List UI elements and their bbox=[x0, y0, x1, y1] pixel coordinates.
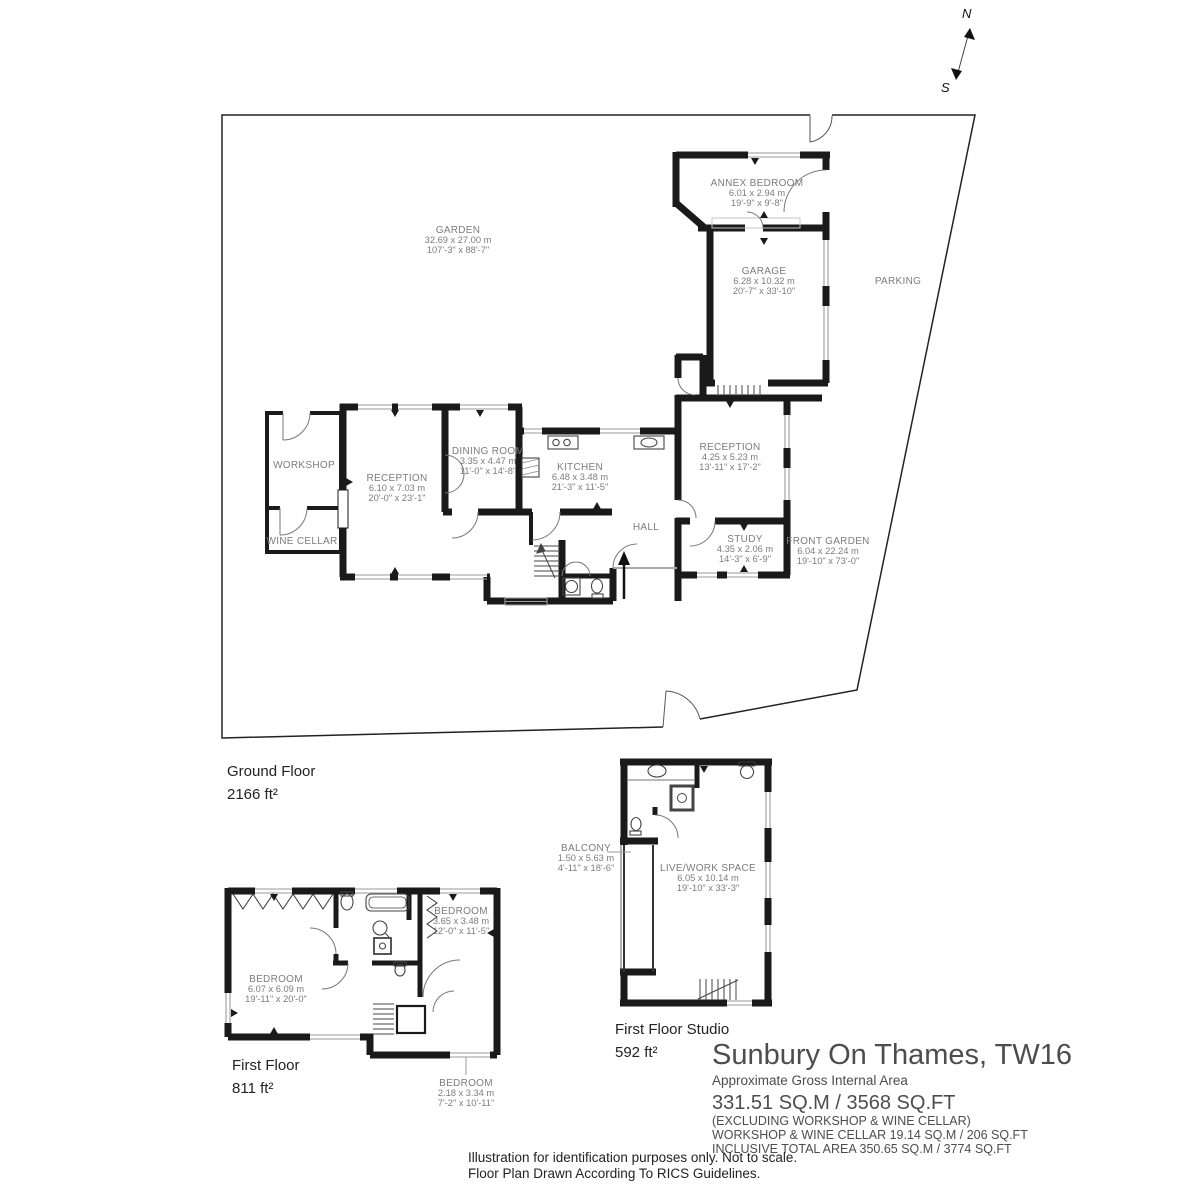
kitchen-hall-door bbox=[532, 512, 560, 540]
studio-title: First Floor Studio bbox=[615, 1018, 729, 1041]
wine-cellar-door bbox=[280, 508, 307, 535]
bedroom-main-label: BEDROOM 6.07 x 6.09 m 19'-11" x 20'-0" bbox=[245, 975, 307, 1004]
study-door bbox=[690, 521, 715, 546]
annex-bedroom-label: ANNEX BEDROOM 6.01 x 2.94 m 19'-9" x 9'-… bbox=[711, 179, 804, 208]
garden-label: GARDEN 32.69 x 27.00 m 107'-3" x 88'-7" bbox=[425, 226, 492, 255]
compass-icon bbox=[951, 28, 975, 80]
wc-basin bbox=[563, 578, 580, 595]
bedroom-3-door bbox=[433, 991, 454, 1012]
disclaimer-line-1: Illustration for identification purposes… bbox=[468, 1150, 797, 1166]
chimney-breast bbox=[338, 490, 348, 528]
bedroom-3-label: BEDROOM 2.18 x 3.34 m 7'-2" x 10'-11" bbox=[438, 1079, 495, 1108]
ground-floor-title: Ground Floor bbox=[227, 760, 315, 783]
studio-tick bbox=[700, 766, 708, 773]
gross-area: 331.51 SQ.M / 3568 SQ.FT bbox=[712, 1092, 1072, 1114]
garage-label: GARAGE 6.28 x 10.32 m 20'-7" x 33'-10" bbox=[733, 267, 795, 296]
bottom-gate-door bbox=[663, 691, 700, 727]
live-work-label: LIVE/WORK SPACE 6.05 x 10.14 m 19'-10" x… bbox=[660, 864, 756, 893]
plot-outline bbox=[222, 115, 975, 738]
compass-south-label: S bbox=[941, 80, 950, 95]
kitchen-sink bbox=[634, 436, 664, 449]
bath bbox=[366, 894, 409, 911]
wine-cellar-label: WINE CELLAR bbox=[266, 537, 337, 547]
studio-doors bbox=[655, 815, 678, 838]
bedroom-2-label: BEDROOM 3.65 x 3.48 m 12'-0" x 11'-5" bbox=[433, 907, 490, 936]
bathroom-door bbox=[322, 963, 348, 989]
site-boundary bbox=[222, 115, 975, 738]
studio-windows bbox=[727, 792, 770, 1005]
title-subtitle: Approximate Gross Internal Area bbox=[712, 1073, 1072, 1088]
area-note-1: (EXCLUDING WORKSHOP & WINE CELLAR) bbox=[712, 1114, 1072, 1128]
studio-bathroom-door bbox=[655, 815, 678, 838]
annex-inner-door bbox=[747, 212, 763, 228]
dining-hall-door bbox=[452, 512, 478, 538]
hob bbox=[548, 436, 578, 449]
compass-north-arrowhead bbox=[964, 28, 975, 40]
toilet-3 bbox=[630, 818, 641, 836]
page-title: Sunbury On Thames, TW16 bbox=[712, 1040, 1072, 1070]
reception-right-door bbox=[678, 500, 696, 518]
shower-1 bbox=[374, 938, 391, 954]
study-label: STUDY 4.35 x 2.06 m 14'-3" x 6'-9" bbox=[717, 535, 773, 564]
front-garden-label: FRONT GARDEN 6.04 x 22.24 m 19'-10" x 73… bbox=[786, 537, 869, 566]
disclaimer: Illustration for identification purposes… bbox=[468, 1150, 797, 1182]
first-floor-area: 811 ft² bbox=[232, 1077, 300, 1100]
compass-north-label: N bbox=[962, 6, 971, 21]
wardrobe-zigzag-top bbox=[233, 894, 333, 909]
basin-1 bbox=[373, 921, 389, 937]
floorplan-page: GARDEN 32.69 x 27.00 m 107'-3" x 88'-7" … bbox=[0, 0, 1200, 1200]
studio-balcony-rail bbox=[621, 845, 653, 972]
first-floor-doors bbox=[310, 928, 460, 1012]
shower-2 bbox=[671, 786, 693, 810]
bedroom-2-door bbox=[423, 960, 460, 997]
dining-room-label: DINING ROOM 3.35 x 4.47 m 11'-0" x 14'-8… bbox=[452, 447, 524, 476]
workshop-label: WORKSHOP bbox=[273, 461, 335, 471]
entrance-arrow-icon bbox=[618, 551, 630, 599]
studio-fixtures bbox=[628, 762, 755, 835]
floorplan-canvas bbox=[0, 0, 1200, 1200]
top-gate-door bbox=[810, 115, 832, 142]
fridge bbox=[522, 458, 539, 477]
area-note-2: WORKSHOP & WINE CELLAR 19.14 SQ.M / 206 … bbox=[712, 1128, 1072, 1142]
lobby-stairs bbox=[718, 385, 760, 396]
hall-label: HALL bbox=[633, 523, 659, 533]
reception-main-label: RECEPTION 6.10 x 7.03 m 20'-0" x 23'-1" bbox=[366, 474, 427, 503]
first-floor-stairs bbox=[373, 1004, 425, 1034]
lobby-door bbox=[678, 378, 695, 395]
reception-right-label: RECEPTION 4.25 x 5.23 m 13'-11" x 17'-2" bbox=[699, 443, 761, 472]
studio-stairs bbox=[698, 979, 738, 1000]
first-floor-title: First Floor bbox=[232, 1054, 300, 1077]
balcony-label: BALCONY 1.50 x 5.63 m 4'-11" x 18'-6" bbox=[558, 844, 615, 873]
ground-floor-caption: Ground Floor 2166 ft² bbox=[227, 760, 315, 806]
disclaimer-line-2: Floor Plan Drawn According To RICS Guide… bbox=[468, 1166, 797, 1182]
workshop-door bbox=[283, 413, 310, 440]
toilet-1 bbox=[341, 892, 353, 910]
wc-toilet bbox=[592, 579, 604, 598]
kitchen-label: KITCHEN 6.48 x 3.48 m 21'-3" x 11'-5" bbox=[552, 463, 609, 492]
compass-south-arrowhead bbox=[951, 68, 962, 80]
parking-label: PARKING bbox=[875, 277, 921, 287]
workshop-walls bbox=[267, 411, 341, 554]
bedroom-main-door bbox=[310, 928, 336, 954]
basin-2 bbox=[628, 765, 694, 780]
ground-floor-area: 2166 ft² bbox=[227, 783, 315, 806]
title-block: Sunbury On Thames, TW16 Approximate Gros… bbox=[712, 1040, 1072, 1156]
first-floor-caption: First Floor 811 ft² bbox=[232, 1054, 300, 1100]
